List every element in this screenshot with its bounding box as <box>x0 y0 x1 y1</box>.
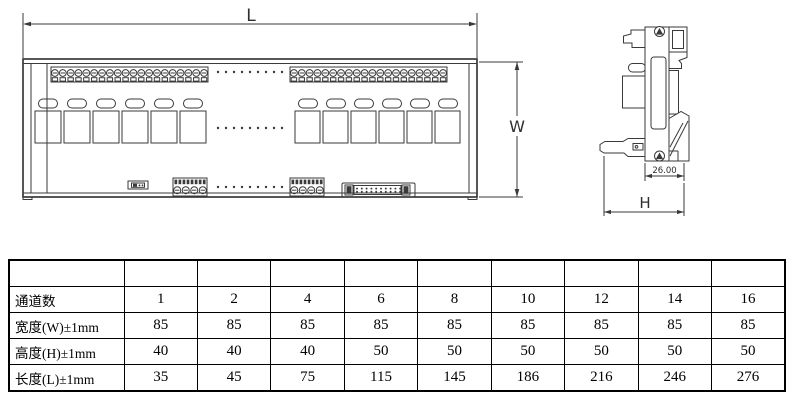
table-header-row <box>9 260 785 287</box>
table-row: 宽度(W)±1mm858585858585858585 <box>9 313 785 339</box>
table-cell: 85 <box>712 313 786 339</box>
table-cell: 4 <box>271 287 344 313</box>
table-row: 通道数1246810121416 <box>9 287 785 313</box>
empty-header-cell <box>638 260 711 287</box>
table-cell: 186 <box>491 365 564 392</box>
table-cell: 145 <box>418 365 491 392</box>
table-cell: 85 <box>271 313 344 339</box>
table-cell: 85 <box>638 313 711 339</box>
table-cell: 40 <box>271 339 344 365</box>
table-cell: 45 <box>197 365 270 392</box>
table-cell: 50 <box>638 339 711 365</box>
height-dim-label: H <box>639 194 650 212</box>
table-cell: 85 <box>344 313 417 339</box>
idc-connector <box>342 183 415 197</box>
table-cell: 40 <box>197 339 270 365</box>
table-cell: 12 <box>565 287 638 313</box>
technical-drawing-page: L <box>0 0 790 401</box>
empty-header-cell <box>271 260 344 287</box>
row-label: 通道数 <box>9 287 124 313</box>
spec-table: 通道数1246810121416宽度(W)±1mm858585858585858… <box>8 259 786 392</box>
dimension-drawings: L <box>0 0 790 252</box>
idc-pins <box>356 188 401 193</box>
front-view-drawing: L <box>23 6 527 200</box>
empty-header-cell <box>712 260 786 287</box>
table-cell: 85 <box>197 313 270 339</box>
ellipsis-dots-top <box>217 71 283 73</box>
dimension-height: H <box>604 156 684 216</box>
table-cell: 85 <box>124 313 197 339</box>
ellipsis-dots-bottom <box>217 186 283 188</box>
dimension-width: W <box>479 62 527 197</box>
depth-dim-value: 26.00 <box>652 166 676 176</box>
empty-header-cell <box>565 260 638 287</box>
terminal-strip-left <box>51 67 208 82</box>
terminal-strip-right <box>290 67 447 82</box>
length-dim-label: L <box>246 6 256 26</box>
row-label: 宽度(W)±1mm <box>9 313 124 339</box>
table-row: 长度(L)±1mm354575115145186216246276 <box>9 365 785 392</box>
table-cell: 50 <box>491 339 564 365</box>
row-label: 高度(H)±1mm <box>9 339 124 365</box>
width-dim-label: W <box>509 117 525 136</box>
table-cell: 1 <box>124 287 197 313</box>
dimension-length: L <box>23 6 477 58</box>
dimension-depth: 26.00 <box>645 163 684 181</box>
table-cell: 6 <box>344 287 417 313</box>
table-cell: 50 <box>344 339 417 365</box>
table-cell: 85 <box>565 313 638 339</box>
empty-header-cell <box>124 260 197 287</box>
table-cell: 35 <box>124 365 197 392</box>
table-cell: 246 <box>638 365 711 392</box>
table-cell: 40 <box>124 339 197 365</box>
empty-header-cell <box>9 260 124 287</box>
table-cell: 85 <box>418 313 491 339</box>
table-cell: 276 <box>712 365 786 392</box>
table-cell: 10 <box>491 287 564 313</box>
table-cell: 16 <box>712 287 786 313</box>
side-view-drawing: 26.00 H <box>600 27 689 217</box>
relay-channels-left <box>35 99 206 143</box>
table-row: 高度(H)±1mm404040505050505050 <box>9 339 785 365</box>
table-cell: 50 <box>418 339 491 365</box>
table-cell: 216 <box>565 365 638 392</box>
empty-header-cell <box>418 260 491 287</box>
table-cell: 2 <box>197 287 270 313</box>
table-cell: 8 <box>418 287 491 313</box>
empty-header-cell <box>491 260 564 287</box>
row-label: 长度(L)±1mm <box>9 365 124 392</box>
config-switch <box>128 181 148 189</box>
table-cell: 75 <box>271 365 344 392</box>
ellipsis-dots-middle <box>217 127 283 129</box>
empty-header-cell <box>197 260 270 287</box>
table-cell: 50 <box>712 339 786 365</box>
relay-channels-right <box>295 99 460 143</box>
table-cell: 85 <box>491 313 564 339</box>
table-cell: 14 <box>638 287 711 313</box>
table-cell: 50 <box>565 339 638 365</box>
table-cell: 115 <box>344 365 417 392</box>
empty-header-cell <box>344 260 417 287</box>
